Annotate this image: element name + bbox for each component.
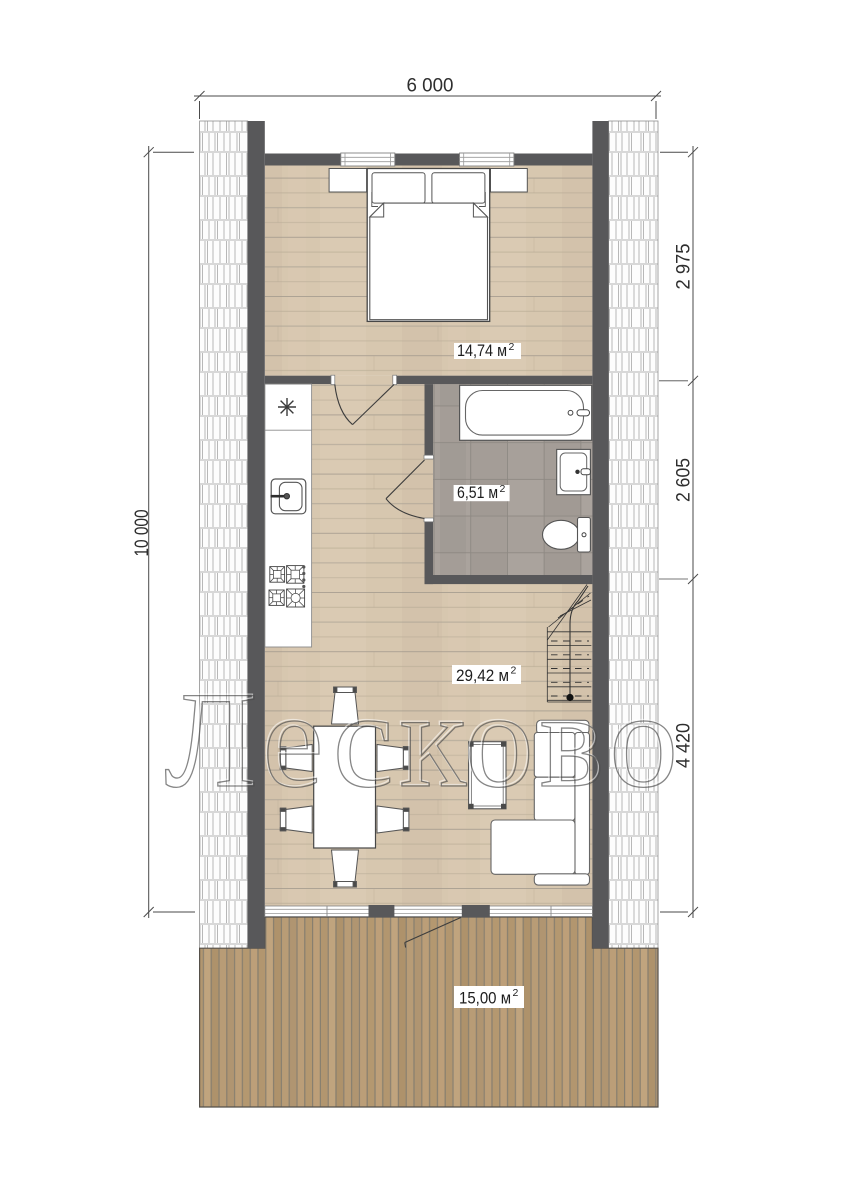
svg-text:2: 2 (511, 665, 517, 677)
svg-text:6,51 м: 6,51 м (457, 483, 498, 502)
svg-text:2: 2 (500, 483, 506, 495)
svg-text:2 975: 2 975 (674, 244, 695, 290)
svg-text:2 605: 2 605 (674, 458, 695, 502)
svg-text:6 000: 6 000 (407, 76, 454, 97)
svg-text:Лесково: Лесково (164, 663, 683, 816)
svg-text:15,00 м: 15,00 м (459, 989, 511, 1008)
svg-text:10 000: 10 000 (132, 510, 153, 557)
svg-text:2: 2 (513, 987, 519, 999)
svg-text:2: 2 (509, 341, 515, 353)
svg-text:14,74 м: 14,74 м (457, 341, 507, 360)
svg-text:29,42 м: 29,42 м (456, 666, 509, 685)
